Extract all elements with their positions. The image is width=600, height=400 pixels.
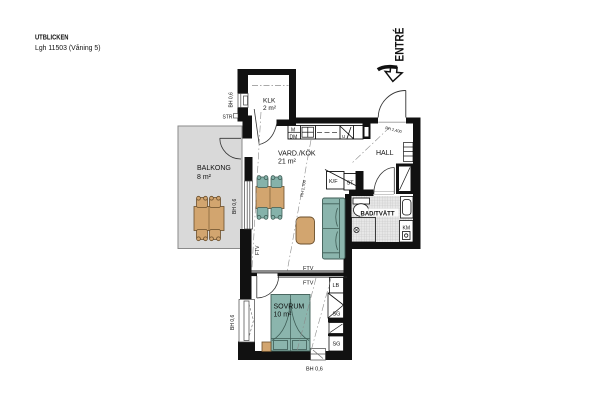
svg-text:BALKONG: BALKONG xyxy=(197,165,231,172)
svg-text:BH 0,6: BH 0,6 xyxy=(230,314,236,330)
svg-text:FTV: FTV xyxy=(303,280,314,286)
svg-text:UTBLICKEN: UTBLICKEN xyxy=(35,35,69,42)
svg-text:SG: SG xyxy=(333,342,341,348)
svg-text:LB: LB xyxy=(333,283,340,289)
svg-text:SOVRUM: SOVRUM xyxy=(274,304,305,311)
svg-text:KLK: KLK xyxy=(263,98,276,105)
svg-text:VARD./KÖK: VARD./KÖK xyxy=(278,150,316,158)
svg-text:ENTRÉ: ENTRÉ xyxy=(394,27,407,61)
svg-text:Lgh 11503 (Våning 5): Lgh 11503 (Våning 5) xyxy=(35,44,101,52)
svg-text:FTV: FTV xyxy=(255,245,261,255)
svg-text:21 m²: 21 m² xyxy=(278,159,297,166)
svg-text:SG: SG xyxy=(333,312,341,318)
svg-text:2 m²: 2 m² xyxy=(263,105,277,112)
svg-text:DM: DM xyxy=(290,134,298,140)
svg-text:10 m²: 10 m² xyxy=(274,312,293,319)
svg-text:HALL: HALL xyxy=(376,150,394,157)
svg-text:BH 0,6: BH 0,6 xyxy=(306,367,323,373)
svg-text:FTV: FTV xyxy=(303,266,314,272)
svg-text:KM: KM xyxy=(403,226,411,232)
svg-text:M: M xyxy=(291,128,295,134)
svg-text:BH 0,6: BH 0,6 xyxy=(229,92,235,108)
svg-text:U: U xyxy=(342,134,345,139)
svg-text:8 m²: 8 m² xyxy=(197,174,212,181)
svg-text:STR: STR xyxy=(223,115,233,121)
svg-text:K/F: K/F xyxy=(329,179,338,185)
svg-text:BH 0,6: BH 0,6 xyxy=(232,198,238,214)
svg-text:BAD/TVÄTT: BAD/TVÄTT xyxy=(361,210,395,217)
